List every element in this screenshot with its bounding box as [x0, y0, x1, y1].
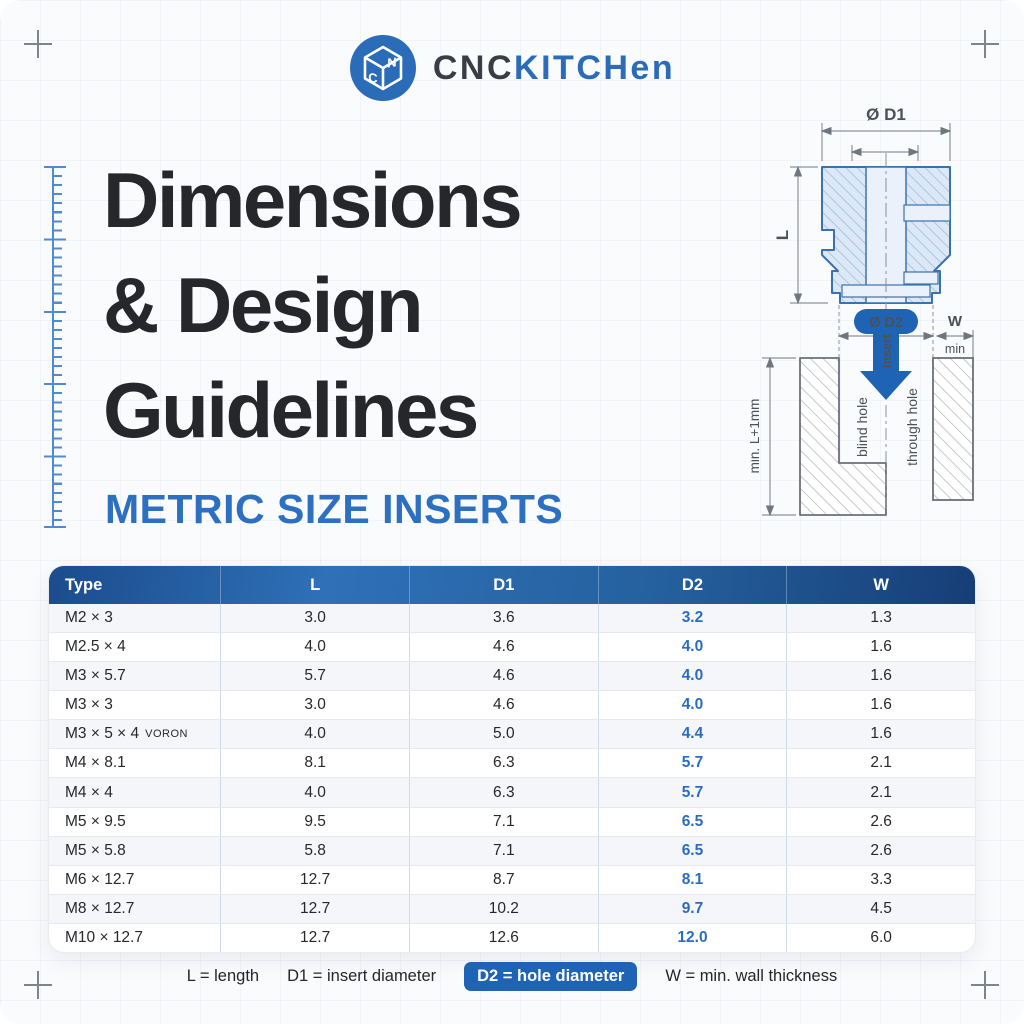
column-header-l: L [220, 566, 409, 604]
legend-w: W = min. wall thickness [665, 967, 837, 986]
d2-cell: 5.7 [598, 778, 787, 806]
cnc-kitchen-cube-icon: C N [349, 34, 417, 102]
w-cell: 1.6 [786, 691, 975, 719]
through-hole-label: through hole [904, 388, 920, 466]
d1-dimension-label: Ø D1 [866, 105, 906, 124]
w-cell: 1.3 [786, 604, 975, 632]
type-cell: M6 × 12.7 [65, 871, 134, 889]
d2-pill-label: Ø D2 [869, 315, 903, 331]
infographic-page: C N CNCKITCHen Dimensions & Design Guide… [0, 0, 1024, 1024]
d2-cell: 6.5 [598, 837, 787, 865]
d1-cell: 10.2 [409, 895, 598, 923]
column-header-w: W [786, 566, 975, 604]
installation-drawing: W min Ø D2 insert blind hole through hol… [750, 305, 973, 515]
d1-cell: 6.3 [409, 778, 598, 806]
type-cell: M8 × 12.7 [65, 900, 134, 918]
type-cell: M3 × 3 [65, 696, 113, 714]
insert-arrow-label: insert [880, 333, 894, 368]
d2-cell: 9.7 [598, 895, 787, 923]
title-line-1: Dimensions [103, 148, 520, 253]
dimensions-table: Type L D1 D2 W M2 × 3 3.0 3.6 3.2 1.3 M2… [48, 565, 976, 953]
l-cell: 4.0 [220, 633, 409, 661]
w-cell: 3.3 [786, 866, 975, 894]
l-cell: 9.5 [220, 808, 409, 836]
table-row: M8 × 12.7 12.7 10.2 9.7 4.5 [49, 894, 975, 923]
title-line-3: Guidelines [103, 358, 520, 463]
l-cell: 12.7 [220, 924, 409, 952]
brand-wordmark: CNCKITCHen [433, 51, 675, 85]
l-cell: 5.8 [220, 837, 409, 865]
table-row: M4 × 4 4.0 6.3 5.7 2.1 [49, 777, 975, 806]
d2-cell: 4.0 [598, 662, 787, 690]
type-cell: M2 × 3 [65, 609, 113, 627]
l-dimension-label: L [773, 230, 792, 240]
ruler-decoration [44, 166, 66, 528]
w-cell: 2.6 [786, 808, 975, 836]
legend-l: L = length [187, 967, 259, 986]
type-cell: M3 × 5 × 4 [65, 725, 139, 743]
d1-cell: 4.6 [409, 691, 598, 719]
depth-dimension-label: min. L+1mm [750, 399, 762, 474]
d2-cell: 3.2 [598, 604, 787, 632]
svg-text:N: N [387, 54, 396, 70]
l-cell: 4.0 [220, 778, 409, 806]
d2-cell: 4.0 [598, 633, 787, 661]
svg-text:C: C [368, 70, 378, 86]
table-row: M2 × 3 3.0 3.6 3.2 1.3 [49, 604, 975, 632]
type-cell: M5 × 9.5 [65, 813, 126, 831]
w-cell: 2.6 [786, 837, 975, 865]
d1-cell: 4.6 [409, 662, 598, 690]
brand-cnc-text: CNC [433, 49, 514, 87]
table-row: M3 × 3 3.0 4.6 4.0 1.6 [49, 690, 975, 719]
insert-technical-drawing: Ø D1 L W min Ø D2 [750, 95, 1020, 550]
d2-cell: 8.1 [598, 866, 787, 894]
d1-cell: 4.6 [409, 633, 598, 661]
d2-cell: 12.0 [598, 924, 787, 952]
d2-cell: 4.4 [598, 720, 787, 748]
legend-d2-pill: D2 = hole diameter [464, 962, 637, 991]
blind-hole-label: blind hole [854, 397, 870, 457]
type-cell: M5 × 5.8 [65, 842, 126, 860]
legend: L = length D1 = insert diameter D2 = hol… [0, 962, 1024, 991]
column-header-d2: D2 [598, 566, 787, 604]
type-cell: M2.5 × 4 [65, 638, 126, 656]
table-body: M2 × 3 3.0 3.6 3.2 1.3 M2.5 × 4 4.0 4.6 … [49, 604, 975, 952]
d1-cell: 8.7 [409, 866, 598, 894]
type-cell: M4 × 4 [65, 784, 113, 802]
w-cell: 2.1 [786, 778, 975, 806]
d1-cell: 12.6 [409, 924, 598, 952]
type-cell: M10 × 12.7 [65, 929, 143, 947]
column-header-type: Type [49, 566, 220, 604]
table-row: M6 × 12.7 12.7 8.7 8.1 3.3 [49, 865, 975, 894]
table-row: M3 × 5.7 5.7 4.6 4.0 1.6 [49, 661, 975, 690]
w-cell: 1.6 [786, 662, 975, 690]
d2-cell: 4.0 [598, 691, 787, 719]
type-suffix: VORON [145, 728, 188, 740]
d2-cell: 5.7 [598, 749, 787, 777]
table-header: Type L D1 D2 W [49, 566, 975, 604]
table-row: M10 × 12.7 12.7 12.6 12.0 6.0 [49, 923, 975, 952]
table-row: M5 × 9.5 9.5 7.1 6.5 2.6 [49, 807, 975, 836]
w-cell: 1.6 [786, 633, 975, 661]
table-row: M4 × 8.1 8.1 6.3 5.7 2.1 [49, 748, 975, 777]
l-cell: 12.7 [220, 866, 409, 894]
type-cell: M3 × 5.7 [65, 667, 126, 685]
legend-d1: D1 = insert diameter [287, 967, 436, 986]
w-cell: 4.5 [786, 895, 975, 923]
table-row: M3 × 5 × 4VORON 4.0 5.0 4.4 1.6 [49, 719, 975, 748]
w-cell: 6.0 [786, 924, 975, 952]
l-cell: 3.0 [220, 691, 409, 719]
l-cell: 4.0 [220, 720, 409, 748]
w-cell: 2.1 [786, 749, 975, 777]
title-line-2: & Design [103, 253, 520, 358]
brand-kitchen-text: KITCHen [514, 49, 675, 87]
w-min-label: min [945, 342, 965, 356]
d2-cell: 6.5 [598, 808, 787, 836]
type-cell: M4 × 8.1 [65, 754, 126, 772]
page-subtitle: METRIC SIZE INSERTS [105, 486, 563, 533]
brand-logo: C N CNCKITCHen [0, 34, 1024, 102]
insert-slot [904, 272, 938, 284]
column-header-d1: D1 [409, 566, 598, 604]
w-dimension-label: W [948, 313, 963, 330]
through-hole-wall [933, 358, 973, 500]
d1-cell: 3.6 [409, 604, 598, 632]
l-cell: 5.7 [220, 662, 409, 690]
l-cell: 12.7 [220, 895, 409, 923]
d1-cell: 7.1 [409, 837, 598, 865]
page-title: Dimensions & Design Guidelines [103, 148, 520, 463]
l-cell: 8.1 [220, 749, 409, 777]
insert-slot [904, 205, 950, 221]
d1-cell: 6.3 [409, 749, 598, 777]
d1-cell: 7.1 [409, 808, 598, 836]
table-row: M2.5 × 4 4.0 4.6 4.0 1.6 [49, 632, 975, 661]
table-row: M5 × 5.8 5.8 7.1 6.5 2.6 [49, 836, 975, 865]
w-cell: 1.6 [786, 720, 975, 748]
l-cell: 3.0 [220, 604, 409, 632]
d1-cell: 5.0 [409, 720, 598, 748]
